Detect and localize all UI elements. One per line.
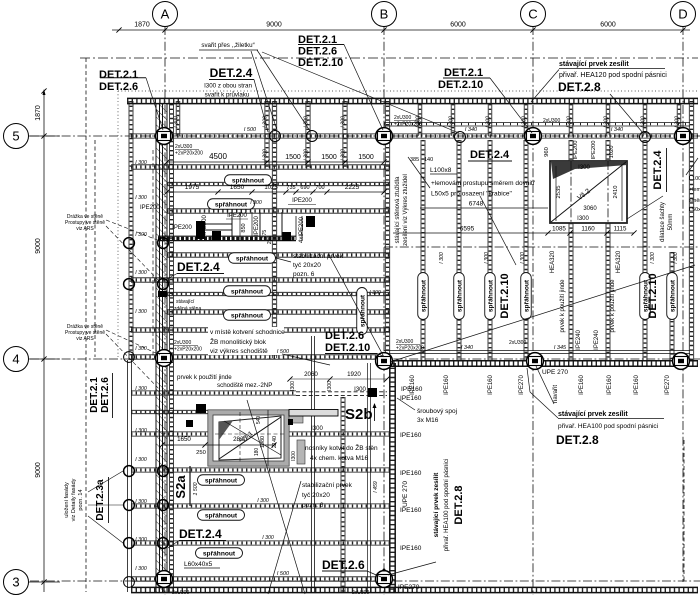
svg-text:L50x5 pr: L50x5 pr [689, 207, 700, 213]
svg-text:DET.2.4: DET.2.4 [210, 66, 253, 80]
svg-text:2410: 2410 [613, 186, 619, 199]
svg-text:IPE270: IPE270 [398, 584, 420, 591]
svg-text:4x chem. kotva M16: 4x chem. kotva M16 [310, 455, 369, 462]
svg-text:I 300: I 300 [135, 346, 147, 352]
svg-text:+lemování: +lemování [689, 187, 700, 193]
svg-text:spřáhnout: spřáhnout [669, 279, 676, 312]
svg-text:I 300: I 300 [604, 116, 610, 128]
svg-text:spřáhnout: spřáhnout [523, 279, 530, 312]
svg-text:IPE160: IPE160 [400, 470, 422, 477]
svg-text:I 300: I 300 [673, 252, 679, 264]
svg-text:DET.2.6: DET.2.6 [298, 46, 337, 58]
svg-text:I 300: I 300 [135, 160, 147, 166]
svg-text:přivař. HEA120 pod spodní pásn: přivař. HEA120 pod spodní pásnici [559, 72, 667, 79]
svg-text:C: C [528, 7, 537, 22]
svg-text:3x M16: 3x M16 [417, 417, 439, 424]
svg-text:HEA320: HEA320 [550, 250, 556, 273]
svg-text:2xU300: 2xU300 [352, 590, 369, 595]
svg-text:prvek k použití jinde: prvek k použití jinde [177, 374, 232, 381]
svg-text:S2b: S2b [345, 406, 373, 423]
svg-text:1500: 1500 [358, 154, 374, 161]
svg-text:IPE160: IPE160 [400, 395, 422, 402]
svg-text:L50x5 pro osazení "krabice": L50x5 pro osazení "krabice" [431, 191, 513, 198]
svg-text:svařit k průvlaku: svařit k průvlaku [205, 92, 250, 99]
svg-text:I300: I300 [290, 381, 296, 391]
svg-text:viz Detaily fasády: viz Detaily fasády [71, 478, 77, 521]
svg-text:1500: 1500 [285, 154, 301, 161]
svg-text:2820: 2820 [233, 436, 247, 443]
svg-text:nosníky kotvit do ŽB stěn: nosníky kotvit do ŽB stěn [305, 443, 378, 452]
svg-text:1160: 1160 [581, 226, 595, 233]
svg-text:IPE200: IPE200 [292, 198, 312, 204]
svg-text:UPE 270: UPE 270 [402, 481, 409, 507]
svg-text:IPE200: IPE200 [573, 140, 579, 159]
svg-text:1650: 1650 [230, 184, 245, 191]
svg-text:DET.2.6: DET.2.6 [99, 81, 138, 93]
svg-text:2xU300: 2xU300 [172, 590, 189, 595]
svg-text:I 300: I 300 [304, 149, 310, 161]
svg-text:I 300: I 300 [135, 270, 147, 276]
svg-text:DET.2.6: DET.2.6 [100, 377, 111, 413]
svg-text:spřáhnout: spřáhnout [215, 201, 248, 208]
svg-text:1650: 1650 [177, 436, 191, 443]
svg-text:stabilizační prvek: stabilizační prvek [302, 482, 353, 489]
svg-text:stávající prvek zesílit: stávající prvek zesílit [559, 61, 629, 68]
svg-text:IPE160: IPE160 [634, 374, 640, 394]
svg-text:DET.2.10: DET.2.10 [438, 79, 483, 91]
svg-text:IPE240: IPE240 [594, 329, 600, 349]
svg-text:1115: 1115 [614, 226, 627, 233]
svg-text:I 345: I 345 [554, 345, 567, 351]
svg-text:navařit: navařit [553, 385, 559, 403]
svg-text:I 300: I 300 [263, 149, 269, 161]
svg-text:spřáhnout: spřáhnout [203, 550, 236, 557]
svg-text:690: 690 [300, 185, 309, 191]
svg-text:IPE200: IPE200 [172, 225, 192, 231]
svg-text:4: 4 [12, 352, 19, 367]
svg-text:+lemování prostupu směrem dovn: +lemování prostupu směrem dovnitř [431, 180, 536, 187]
svg-text:DET.2.8: DET.2.8 [453, 485, 465, 524]
svg-text:DET.2.4: DET.2.4 [652, 150, 664, 190]
svg-text:2xU300: 2xU300 [543, 118, 560, 124]
svg-text:zesílení viz Výkres ztužidel: zesílení viz Výkres ztužidel [403, 174, 409, 246]
svg-text:I 500: I 500 [277, 571, 290, 577]
svg-text:ŽB monolitický blok: ŽB monolitický blok [210, 337, 267, 346]
svg-text:IPE160: IPE160 [488, 374, 494, 394]
svg-text:IPE200: IPE200 [202, 214, 208, 234]
svg-text:DET.2.8: DET.2.8 [558, 80, 601, 94]
svg-text:700: 700 [315, 185, 324, 191]
svg-text:DET.2.4: DET.2.4 [177, 260, 220, 274]
svg-text:I 300: I 300 [484, 252, 490, 264]
svg-text:I 459: I 459 [373, 481, 379, 493]
svg-text:I 300: I 300 [250, 200, 262, 206]
svg-text:IPE270: IPE270 [665, 374, 671, 394]
svg-text:1975: 1975 [185, 184, 200, 191]
svg-text:140: 140 [424, 157, 433, 163]
svg-text:IPE200: IPE200 [591, 140, 597, 159]
svg-text:viz ARS: viz ARS [76, 336, 94, 342]
svg-text:540: 540 [256, 416, 262, 425]
svg-text:I 300: I 300 [449, 116, 455, 128]
svg-text:L60x40x5: L60x40x5 [184, 561, 213, 568]
svg-text:pozn. 14: pozn. 14 [78, 489, 84, 510]
svg-text:DET.2.10: DET.2.10 [298, 57, 343, 69]
svg-text:IPE200: IPE200 [140, 205, 160, 211]
svg-text:zděná stěna: zděná stěna [174, 306, 201, 312]
svg-text:I 300: I 300 [257, 498, 269, 504]
svg-text:I 300: I 300 [416, 116, 422, 128]
svg-text:I 340: I 340 [461, 345, 474, 351]
svg-text:I 300: I 300 [135, 537, 147, 543]
svg-text:3060: 3060 [583, 206, 597, 212]
svg-text:I 300: I 300 [135, 195, 147, 201]
svg-text:+2xP20x200: +2xP20x200 [174, 347, 202, 353]
svg-text:šroubový spoj: šroubový spoj [417, 408, 457, 415]
svg-text:I300: I300 [291, 451, 297, 461]
svg-text:spřáhnout: spřáhnout [487, 279, 494, 312]
svg-text:B: B [380, 7, 389, 22]
svg-text:I 340: I 340 [465, 127, 478, 133]
svg-text:uložení fasády: uložení fasády [64, 482, 70, 518]
svg-text:DET.2.10: DET.2.10 [325, 342, 370, 354]
svg-text:spřáhnout: spřáhnout [205, 477, 238, 484]
svg-text:I 340: I 340 [611, 127, 624, 133]
svg-text:IPE160: IPE160 [400, 545, 422, 552]
svg-text:IPE200: IPE200 [254, 215, 260, 235]
svg-text:I 300: I 300 [262, 535, 274, 541]
svg-text:tyč 20x20: tyč 20x20 [302, 492, 330, 499]
svg-text:HEA320: HEA320 [616, 250, 622, 273]
svg-text:I 300: I 300 [439, 252, 445, 264]
svg-text:6000: 6000 [600, 22, 616, 29]
svg-text:I 300: I 300 [135, 499, 147, 505]
svg-text:tyč 20x20: tyč 20x20 [293, 262, 321, 269]
svg-text:DET.2.4: DET.2.4 [470, 149, 510, 161]
svg-text:DET.2.1: DET.2.1 [444, 67, 483, 79]
svg-text:DET.2.1: DET.2.1 [89, 377, 100, 413]
svg-text:spřáhnout: spřáhnout [205, 512, 238, 519]
svg-text:I 300: I 300 [486, 116, 492, 128]
svg-text:4500: 4500 [209, 152, 227, 161]
svg-text:1085: 1085 [552, 226, 566, 233]
svg-text:2xU300: 2xU300 [175, 144, 192, 150]
svg-text:1920: 1920 [347, 371, 361, 378]
svg-text:směrem d: směrem d [689, 198, 700, 204]
svg-text:2xU300: 2xU300 [396, 339, 413, 345]
svg-text:A: A [161, 7, 170, 22]
svg-text:I 300: I 300 [135, 428, 147, 434]
svg-text:9000: 9000 [266, 22, 282, 29]
svg-text:I 300: I 300 [369, 290, 381, 296]
svg-text:2xU300: 2xU300 [509, 340, 526, 346]
svg-text:prvek k použití jinde: prvek k použití jinde [560, 279, 566, 333]
svg-text:I 300: I 300 [675, 116, 681, 128]
svg-text:I 300: I 300 [341, 116, 347, 128]
svg-text:IPE160: IPE160 [444, 374, 450, 394]
svg-text:I300: I300 [327, 381, 333, 391]
svg-text:6748: 6748 [469, 201, 484, 208]
svg-text:S2a: S2a [173, 475, 188, 499]
svg-text:L100x8: L100x8 [430, 167, 452, 174]
svg-text:přivař. HEA100 pod spodní pásn: přivař. HEA100 pod spodní pásnici [558, 423, 658, 430]
svg-text:v místě kotvení schodnice: v místě kotvení schodnice [210, 329, 285, 336]
svg-text:IPE160: IPE160 [607, 374, 613, 394]
svg-text:I 300: I 300 [135, 309, 147, 315]
svg-text:5: 5 [12, 129, 19, 144]
svg-text:6000: 6000 [450, 22, 466, 29]
svg-text:295: 295 [267, 236, 273, 245]
svg-text:IPE160: IPE160 [410, 374, 416, 394]
svg-text:I 300: I 300 [650, 252, 656, 264]
svg-text:viz ARS: viz ARS [76, 226, 94, 232]
svg-text:I 500: I 500 [244, 127, 257, 133]
svg-text:1870: 1870 [134, 22, 150, 29]
svg-text:2535: 2535 [556, 186, 562, 199]
svg-text:I300: I300 [577, 216, 589, 222]
svg-text:spřáhnout: spřáhnout [231, 288, 264, 295]
svg-text:spřáhnout: spřáhnout [456, 279, 463, 312]
svg-text:I300: I300 [578, 165, 590, 171]
svg-text:960: 960 [544, 147, 550, 157]
svg-text:stávající prvek zesílit: stávající prvek zesílit [433, 472, 440, 538]
svg-text:svařit přes ,,žiletku“: svařit přes ,,žiletku“ [201, 42, 254, 49]
svg-text:I 300: I 300 [135, 566, 147, 572]
svg-text:I 300: I 300 [174, 116, 180, 128]
svg-text:2225: 2225 [345, 184, 360, 191]
svg-text:4xIPE200: 4xIPE200 [299, 216, 305, 243]
svg-text:+2xP20x200: +2xP20x200 [396, 346, 424, 352]
svg-text:IPE160: IPE160 [579, 374, 585, 394]
svg-text:I 300: I 300 [135, 457, 147, 463]
svg-text:50mm: 50mm [668, 214, 674, 231]
svg-text:pozn. 6: pozn. 6 [302, 502, 324, 509]
svg-text:spřáhnout: spřáhnout [236, 255, 269, 262]
svg-text:1500: 1500 [321, 154, 337, 161]
svg-text:+2xP20x200: +2xP20x200 [175, 151, 203, 157]
svg-text:spřáhnout: spřáhnout [420, 279, 427, 312]
svg-text:L100x8: L100x8 [689, 176, 700, 182]
svg-text:spřáhnout: spřáhnout [231, 312, 264, 319]
svg-text:850: 850 [241, 223, 247, 232]
svg-text:IPE240: IPE240 [576, 329, 582, 349]
svg-text:DET.2.10: DET.2.10 [647, 273, 659, 318]
svg-text:přivař. HEA100 pod spodní pásn: přivař. HEA100 pod spodní pásnici [444, 459, 450, 551]
svg-text:I 300: I 300 [135, 386, 147, 392]
svg-text:I 300: I 300 [520, 252, 526, 264]
svg-text:1870: 1870 [35, 105, 42, 121]
svg-text:I300: I300 [354, 387, 366, 393]
svg-text:2140: 2140 [272, 436, 278, 448]
svg-text:IPE200: IPE200 [227, 213, 247, 219]
svg-text:I 300: I 300 [135, 232, 147, 238]
svg-text:1 500: 1 500 [193, 482, 199, 495]
svg-text:IPE160: IPE160 [400, 432, 422, 439]
svg-text:2060: 2060 [304, 371, 318, 378]
svg-text:stabilizační prvek: stabilizační prvek [293, 253, 344, 260]
svg-text:DET.2.6: DET.2.6 [325, 330, 364, 342]
svg-text:dilatace šachty: dilatace šachty [660, 202, 666, 242]
svg-text:UPE 270: UPE 270 [542, 369, 568, 376]
svg-text:735: 735 [286, 185, 295, 191]
svg-text:stávající prvek zesílit: stávající prvek zesílit [558, 411, 628, 418]
svg-text:DET.2.3a: DET.2.3a [95, 479, 106, 521]
svg-text:schodiště mez.-2NP: schodiště mez.-2NP [217, 382, 272, 389]
svg-text:2xU300: 2xU300 [394, 115, 411, 121]
svg-text:9000: 9000 [35, 462, 42, 478]
svg-text:stávající: stávající [176, 299, 195, 305]
svg-text:DET.2.10: DET.2.10 [499, 273, 511, 318]
svg-text:DET.2.4: DET.2.4 [179, 527, 222, 541]
svg-text:DET.2.6: DET.2.6 [322, 558, 365, 572]
svg-text:I 300: I 300 [341, 149, 347, 161]
svg-text:IPE160: IPE160 [400, 507, 422, 514]
svg-text:D: D [678, 7, 687, 22]
svg-text:DET.2.1: DET.2.1 [99, 69, 138, 81]
svg-text:I300 z obou stran: I300 z obou stran [204, 83, 252, 90]
svg-text:I 300: I 300 [641, 116, 647, 128]
svg-text:9000: 9000 [35, 238, 42, 254]
svg-text:I 300: I 300 [567, 116, 573, 128]
svg-text:I300: I300 [311, 426, 323, 432]
svg-text:prvek k použití jinde: prvek k použití jinde [610, 279, 616, 333]
svg-text:stávající stěnová ztužidla: stávající stěnová ztužidla [395, 176, 401, 243]
svg-text:viz výkres schodiště: viz výkres schodiště [210, 348, 268, 355]
svg-text:6595: 6595 [460, 226, 475, 233]
svg-text:1025: 1025 [264, 185, 278, 191]
svg-text:2xU300: 2xU300 [174, 340, 191, 346]
svg-text:pozn. 6: pozn. 6 [293, 271, 315, 278]
svg-text:3: 3 [12, 575, 19, 590]
svg-text:250: 250 [196, 450, 206, 456]
svg-text:IPE270: IPE270 [519, 374, 525, 394]
svg-text:1020: 1020 [609, 146, 615, 159]
svg-text:DET.2.8: DET.2.8 [556, 433, 599, 447]
